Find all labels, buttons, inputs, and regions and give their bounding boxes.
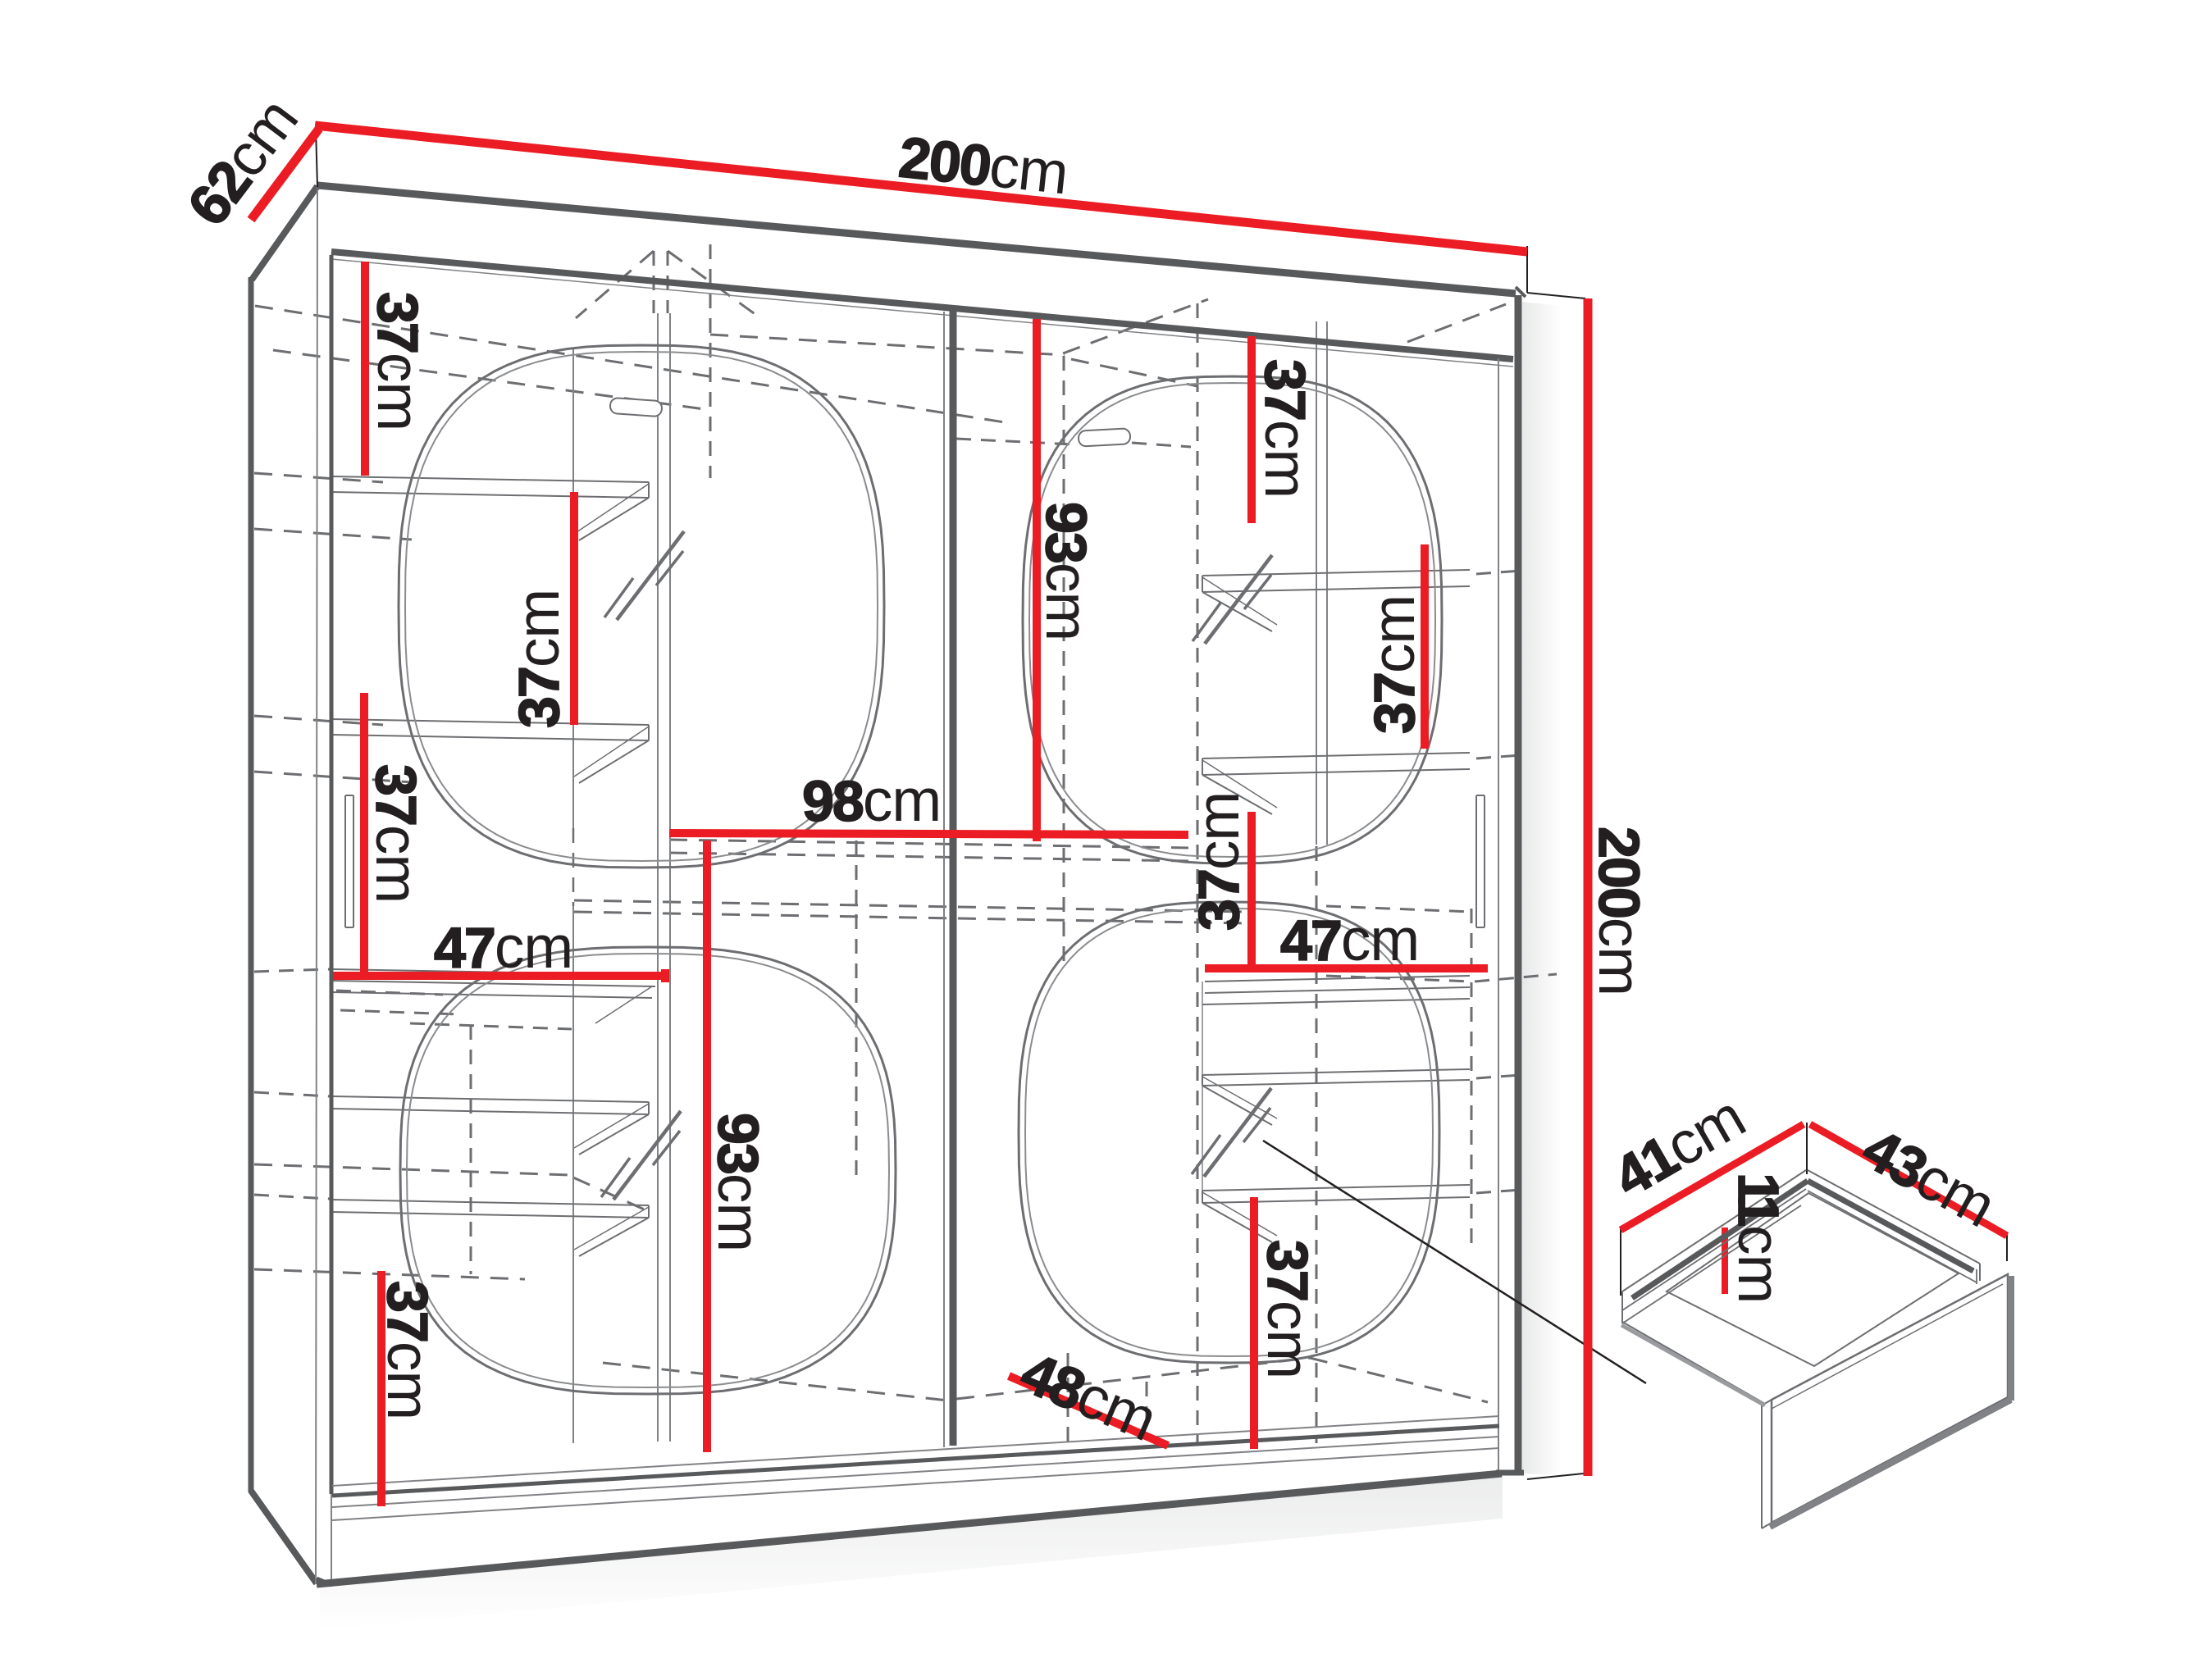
svg-text:93cm: 93cm (705, 1113, 772, 1251)
svg-text:47cm: 47cm (434, 914, 572, 981)
svg-text:37cm: 37cm (1361, 595, 1427, 734)
svg-text:93cm: 93cm (1033, 502, 1100, 640)
svg-text:37cm: 37cm (1255, 1240, 1321, 1378)
svg-text:37cm: 37cm (1185, 792, 1252, 931)
svg-text:37cm: 37cm (505, 590, 572, 728)
svg-text:37cm: 37cm (363, 764, 430, 903)
svg-text:200cm: 200cm (1586, 827, 1653, 995)
svg-text:11cm: 11cm (1726, 1173, 1792, 1303)
svg-text:37cm: 37cm (1252, 359, 1319, 498)
svg-text:98cm: 98cm (802, 768, 941, 834)
svg-text:47cm: 47cm (1280, 907, 1419, 973)
svg-text:37cm: 37cm (365, 292, 431, 430)
svg-text:37cm: 37cm (375, 1281, 441, 1419)
